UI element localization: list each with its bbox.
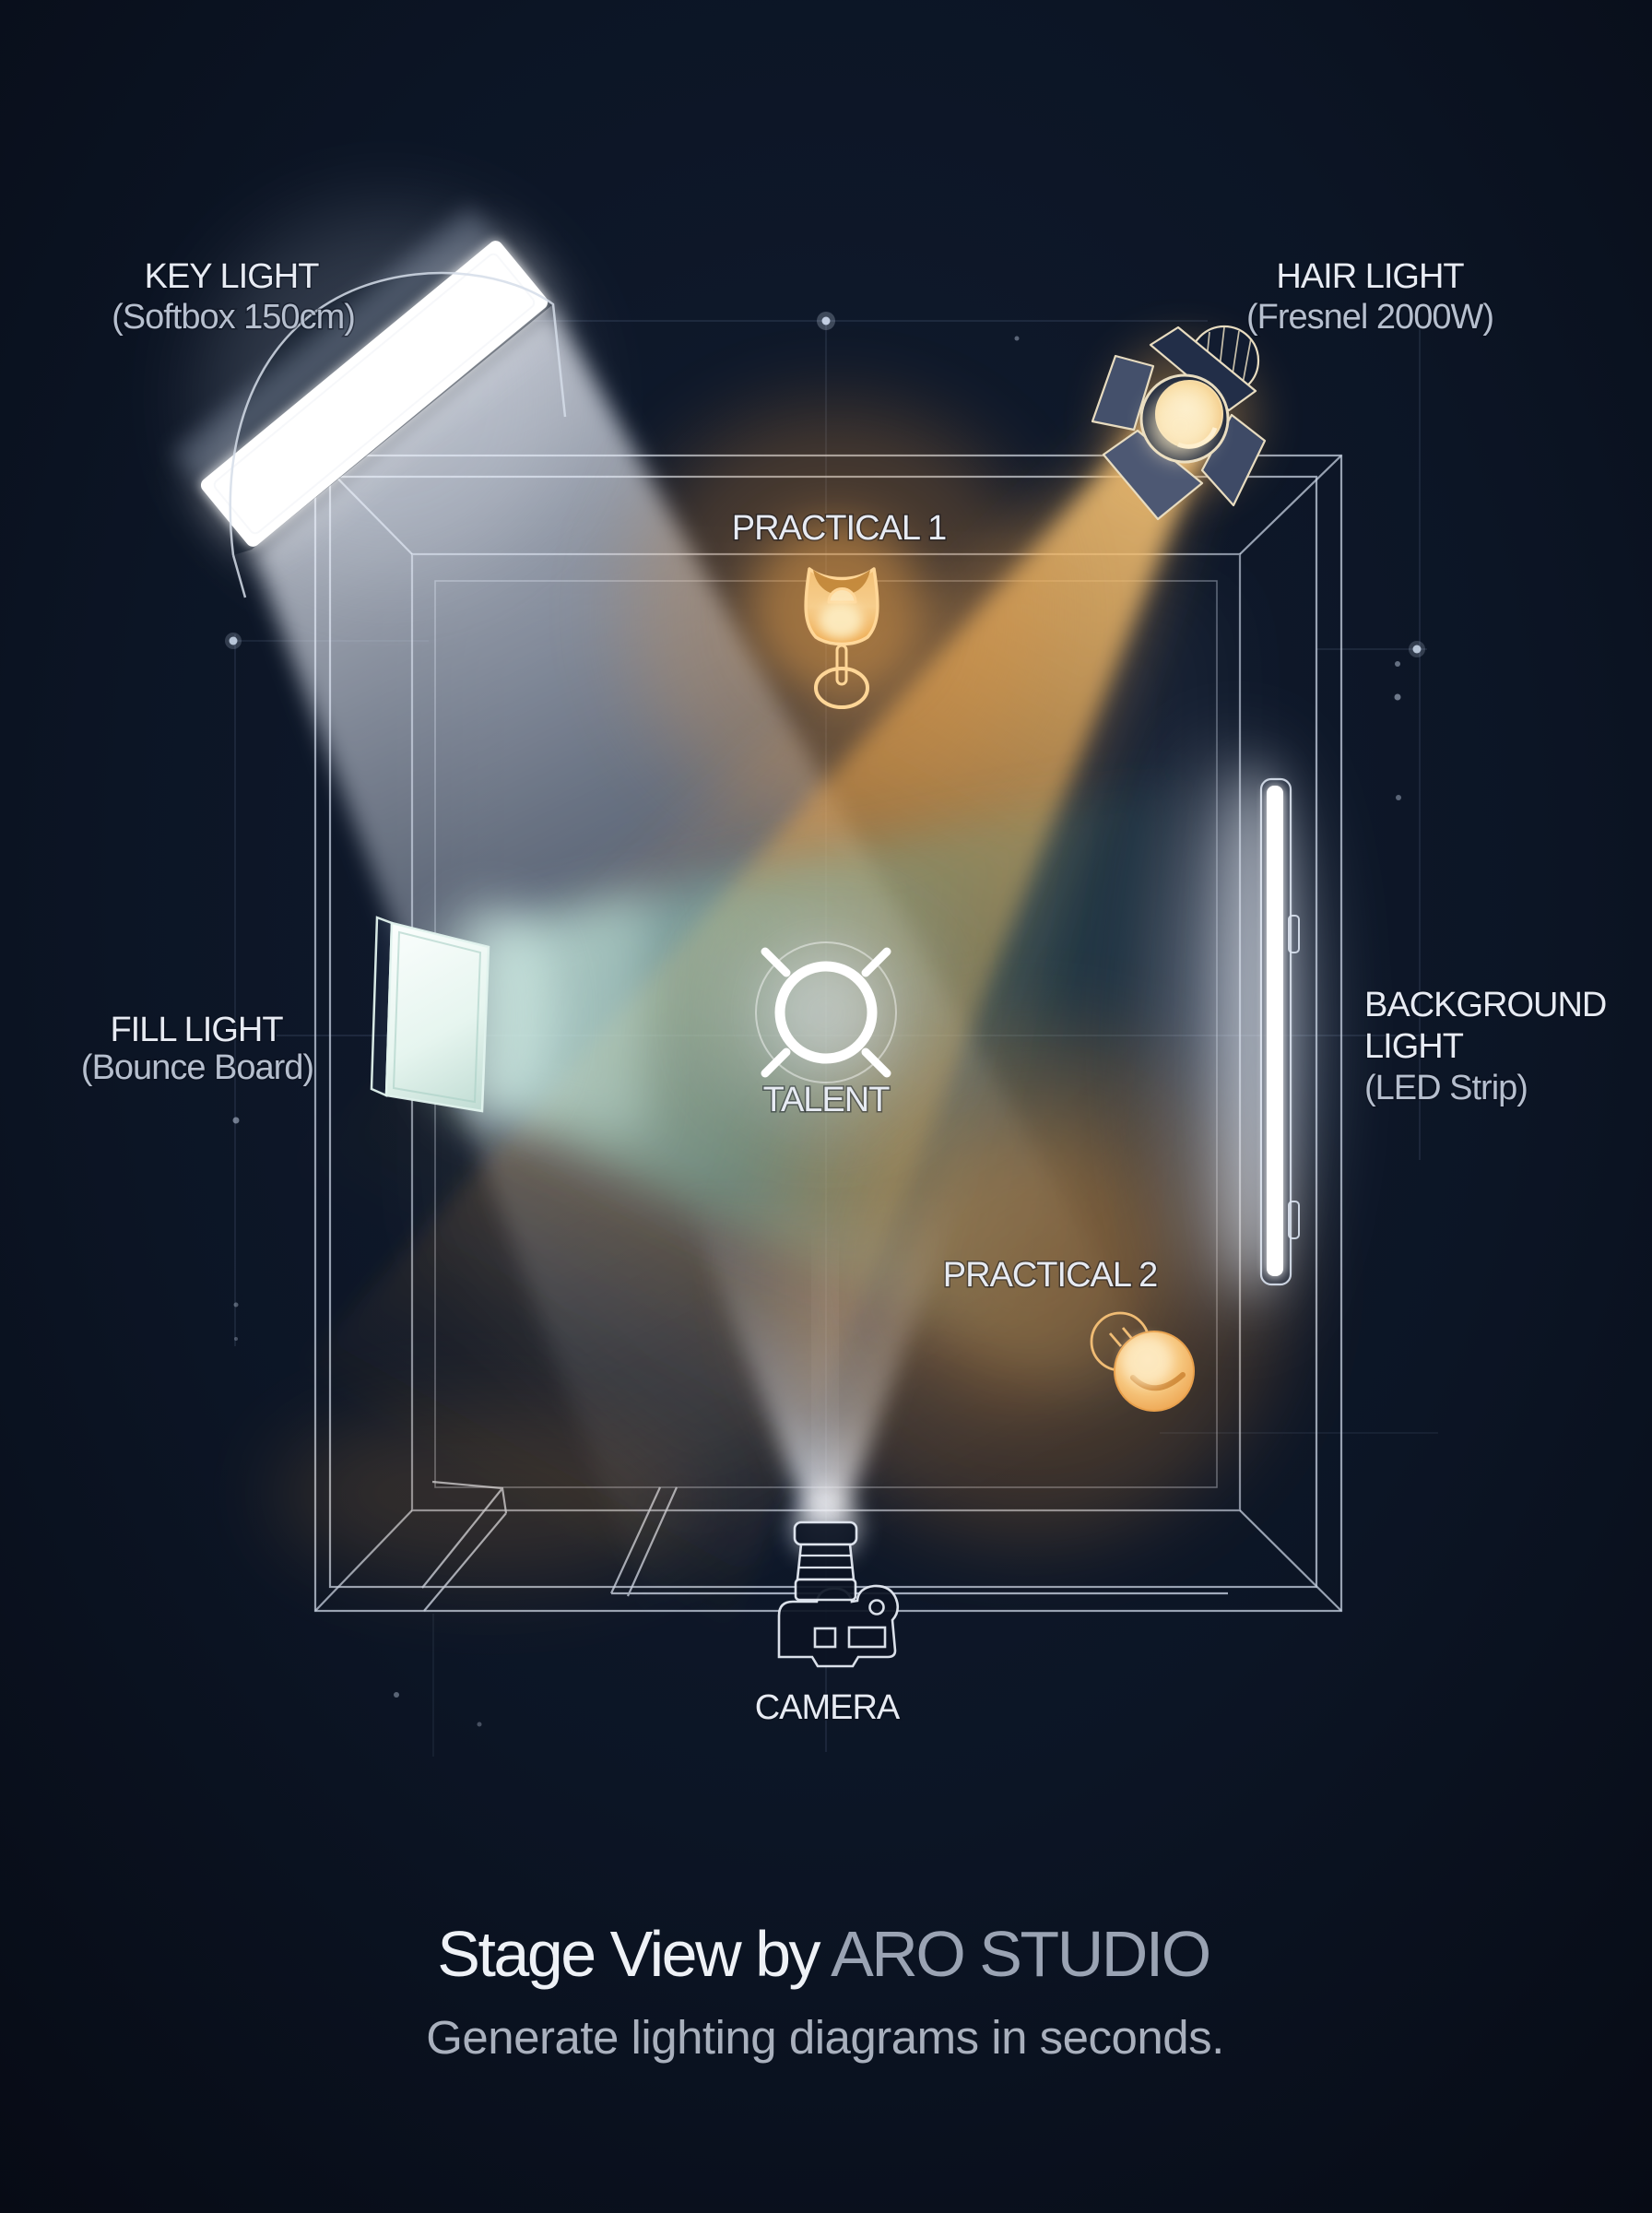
svg-text:FILL LIGHT: FILL LIGHT (110, 1011, 283, 1049)
svg-text:CAMERA: CAMERA (755, 1688, 901, 1727)
svg-text:PRACTICAL 2: PRACTICAL 2 (943, 1256, 1158, 1295)
svg-text:KEY LIGHT: KEY LIGHT (145, 257, 320, 296)
svg-text:LIGHT: LIGHT (1364, 1027, 1464, 1066)
svg-text:(Softbox 150cm): (Softbox 150cm) (112, 298, 355, 337)
svg-text:HAIR LIGHT: HAIR LIGHT (1276, 257, 1464, 296)
svg-text:(LED Strip): (LED Strip) (1364, 1069, 1528, 1107)
svg-text:TALENT: TALENT (763, 1081, 891, 1119)
svg-text:(Fresnel 2000W): (Fresnel 2000W) (1246, 298, 1493, 337)
svg-text:BACKGROUND: BACKGROUND (1364, 986, 1606, 1024)
svg-text:(Bounce Board): (Bounce Board) (81, 1048, 313, 1087)
svg-text:Stage View by ARO STUDIO: Stage View by ARO STUDIO (437, 1918, 1209, 1990)
svg-text:PRACTICAL 1: PRACTICAL 1 (732, 509, 947, 548)
svg-text:Generate lighting diagrams in: Generate lighting diagrams in seconds. (426, 2011, 1224, 2064)
